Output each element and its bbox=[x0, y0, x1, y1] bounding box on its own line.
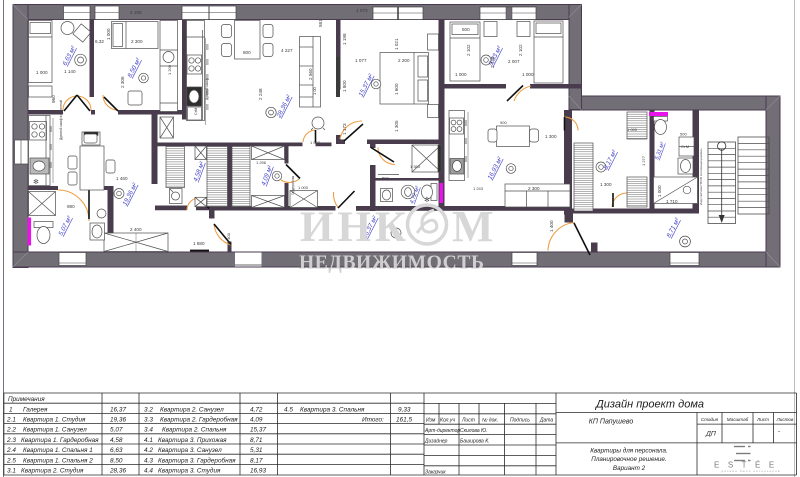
svg-text:3.1: 3.1 bbox=[7, 468, 16, 475]
svg-text:4,72: 4,72 bbox=[250, 406, 263, 413]
svg-text:16,37: 16,37 bbox=[110, 406, 126, 413]
svg-text:960: 960 bbox=[51, 95, 56, 103]
svg-text:Духовой шкаф встроенный: Духовой шкаф встроенный bbox=[59, 100, 63, 140]
svg-text:28,36: 28,36 bbox=[109, 468, 126, 475]
svg-text:161,5: 161,5 bbox=[396, 417, 412, 424]
svg-text:✻: ✻ bbox=[33, 178, 39, 186]
svg-text:Вариант 2: Вариант 2 bbox=[613, 465, 646, 472]
svg-text:1 300: 1 300 bbox=[600, 182, 612, 187]
svg-text:2 102: 2 102 bbox=[518, 44, 523, 56]
svg-text:1 365: 1 365 bbox=[410, 164, 421, 169]
svg-text:15,37: 15,37 bbox=[250, 427, 266, 434]
svg-text:Квартира 3. Санузел: Квартира 3. Санузел bbox=[158, 447, 222, 454]
svg-text:Квартира 1. Санузел: Квартира 1. Санузел bbox=[23, 427, 87, 434]
svg-text:✻: ✻ bbox=[424, 196, 430, 204]
svg-text:600: 600 bbox=[206, 104, 210, 110]
svg-text:Лист: Лист bbox=[756, 417, 769, 422]
svg-text:600: 600 bbox=[464, 156, 468, 162]
svg-text:2 100: 2 100 bbox=[130, 10, 142, 15]
svg-text:2.2: 2.2 bbox=[6, 427, 16, 434]
svg-text:1 000: 1 000 bbox=[106, 28, 111, 40]
svg-text:Квартира 2. Санузел: Квартира 2. Санузел bbox=[160, 406, 224, 413]
svg-text:3.4: 3.4 bbox=[144, 427, 153, 434]
svg-text:1 460: 1 460 bbox=[116, 176, 128, 181]
svg-text:600: 600 bbox=[206, 59, 210, 65]
svg-text:1 000: 1 000 bbox=[298, 185, 309, 190]
svg-text:1 173: 1 173 bbox=[342, 123, 347, 135]
svg-text:Итого:: Итого: bbox=[362, 417, 384, 424]
svg-text:Лист: Лист bbox=[461, 418, 475, 424]
svg-text:8,71: 8,71 bbox=[250, 437, 263, 444]
svg-text:1 880: 1 880 bbox=[193, 241, 205, 246]
svg-text:1 300: 1 300 bbox=[545, 134, 557, 139]
svg-text:600: 600 bbox=[49, 126, 53, 132]
svg-text:2.4: 2.4 bbox=[6, 447, 16, 454]
svg-text:4,58: 4,58 bbox=[110, 437, 123, 444]
svg-text:1 000: 1 000 bbox=[627, 127, 638, 132]
svg-text:1 000: 1 000 bbox=[36, 70, 48, 75]
svg-text:1 600: 1 600 bbox=[394, 83, 399, 95]
svg-text:1 243: 1 243 bbox=[414, 139, 426, 144]
svg-text:1 243: 1 243 bbox=[473, 186, 484, 191]
svg-text:2 200: 2 200 bbox=[398, 58, 410, 63]
svg-text:600: 600 bbox=[182, 33, 187, 40]
svg-text:Квартиры для персонала.: Квартиры для персонала. bbox=[590, 447, 667, 455]
svg-text:4 227: 4 227 bbox=[281, 48, 293, 53]
svg-text:Квартира 3. Прихожая: Квартира 3. Прихожая bbox=[158, 437, 227, 444]
svg-text:Подпись: Подпись bbox=[510, 418, 530, 424]
svg-text:2.3: 2.3 bbox=[6, 437, 16, 444]
svg-text:3.3: 3.3 bbox=[144, 417, 153, 424]
svg-text:1 400: 1 400 bbox=[549, 220, 554, 232]
svg-text:КП Папушево: КП Папушево bbox=[589, 419, 634, 426]
svg-text:581: 581 bbox=[318, 19, 323, 27]
svg-text:Квартира 1. Студия: Квартира 1. Студия bbox=[23, 416, 86, 424]
svg-text:500: 500 bbox=[680, 132, 687, 137]
svg-text:19,36: 19,36 bbox=[110, 417, 126, 424]
svg-text:1 200: 1 200 bbox=[167, 64, 172, 75]
svg-text:Квартира 1. Спальня 2: Квартира 1. Спальня 2 bbox=[23, 457, 93, 464]
svg-text:5,07: 5,07 bbox=[110, 427, 123, 434]
svg-text:1 277: 1 277 bbox=[641, 155, 646, 166]
svg-text:6,63: 6,63 bbox=[110, 447, 123, 454]
svg-text:Примечания: Примечания bbox=[8, 396, 45, 403]
svg-text:4,09: 4,09 bbox=[250, 417, 263, 424]
svg-text:2 560: 2 560 bbox=[308, 68, 313, 80]
svg-text:600: 600 bbox=[49, 162, 53, 168]
svg-text:М: М bbox=[452, 202, 494, 251]
svg-text:Стадия: Стадия bbox=[701, 417, 719, 422]
svg-text:2 007: 2 007 bbox=[508, 59, 520, 64]
svg-text:1 000: 1 000 bbox=[522, 72, 534, 77]
svg-text:Масштаб: Масштаб bbox=[727, 417, 749, 422]
svg-text:4.5: 4.5 bbox=[284, 406, 293, 413]
svg-text:1 073: 1 073 bbox=[356, 8, 368, 13]
svg-text:Скилова Ю.: Скилова Ю. bbox=[460, 428, 488, 434]
svg-text:Квартира 2. Гардеробная: Квартира 2. Гардеробная bbox=[160, 416, 238, 424]
svg-text:1 400: 1 400 bbox=[226, 232, 231, 243]
svg-text:Дизайн проект дома: Дизайн проект дома bbox=[594, 399, 704, 411]
svg-text:600: 600 bbox=[49, 144, 53, 150]
svg-text:Инд счетчики ГВ/ХВ полотенцесу: Инд счетчики ГВ/ХВ полотенцесушитель bbox=[699, 148, 703, 205]
svg-text:1 077: 1 077 bbox=[355, 58, 367, 63]
svg-text:2 300: 2 300 bbox=[528, 186, 540, 191]
svg-text:5,31: 5,31 bbox=[250, 447, 263, 454]
svg-text:Баширова К.: Баширова К. bbox=[460, 438, 490, 444]
svg-text:№ док.: № док. bbox=[482, 418, 498, 424]
svg-text:СтМ: СтМ bbox=[681, 144, 689, 149]
svg-text:4.2: 4.2 bbox=[144, 447, 153, 454]
svg-text:500: 500 bbox=[382, 176, 389, 181]
svg-text:600: 600 bbox=[464, 138, 468, 144]
svg-text:Квартира 3. Студия: Квартира 3. Студия bbox=[158, 467, 221, 475]
svg-text:1 198: 1 198 bbox=[342, 33, 347, 45]
svg-text:1 021: 1 021 bbox=[394, 38, 399, 50]
svg-text:1 305: 1 305 bbox=[394, 120, 399, 132]
svg-text:1 00: 1 00 bbox=[312, 86, 317, 95]
svg-text:2 102: 2 102 bbox=[466, 44, 471, 56]
svg-text:1 000: 1 000 bbox=[455, 72, 467, 77]
svg-text:2 745: 2 745 bbox=[490, 56, 495, 68]
svg-text:Изм: Изм bbox=[426, 418, 436, 424]
svg-text:2 248: 2 248 bbox=[258, 88, 263, 100]
svg-text:6,32: 6,32 bbox=[95, 39, 104, 44]
svg-text:Планировочное решение.: Планировочное решение. bbox=[591, 456, 666, 463]
svg-text:Квартира 3. Спальня: Квартира 3. Спальня bbox=[300, 406, 365, 413]
svg-text:1 583: 1 583 bbox=[310, 140, 321, 145]
svg-text:1 800: 1 800 bbox=[342, 80, 347, 92]
svg-text:2.1: 2.1 bbox=[6, 417, 16, 424]
svg-text:2.5: 2.5 bbox=[6, 457, 16, 464]
svg-text:3.2: 3.2 bbox=[144, 406, 153, 413]
svg-text:Галерея: Галерея bbox=[23, 406, 48, 413]
svg-text:Квартира 1. Гардеробная: Квартира 1. Гардеробная bbox=[21, 436, 99, 444]
svg-text:9,33: 9,33 bbox=[398, 406, 411, 413]
svg-text:800: 800 bbox=[243, 50, 251, 55]
svg-text:16,93: 16,93 bbox=[250, 468, 266, 475]
svg-text:4.4: 4.4 bbox=[144, 468, 153, 475]
svg-text:дизайн бюро интерьеров: дизайн бюро интерьеров bbox=[721, 469, 780, 473]
svg-text:600: 600 bbox=[464, 120, 468, 126]
svg-text:ИНК: ИНК bbox=[300, 204, 410, 251]
svg-text:2 306: 2 306 bbox=[120, 76, 125, 88]
svg-text:8,17: 8,17 bbox=[250, 457, 263, 464]
svg-text:НЕДВИЖИМОСТЬ: НЕДВИЖИМОСТЬ bbox=[299, 253, 484, 274]
svg-text:Арт-директор: Арт-директор bbox=[424, 428, 460, 434]
svg-text:2 400: 2 400 bbox=[130, 227, 142, 232]
svg-text:1 710: 1 710 bbox=[666, 199, 678, 204]
svg-text:Заказчик: Заказчик bbox=[425, 470, 446, 476]
svg-text:980: 980 bbox=[67, 204, 75, 209]
svg-text:ДП: ДП bbox=[705, 431, 716, 438]
svg-text:8,50: 8,50 bbox=[110, 457, 123, 464]
svg-text:Дата: Дата bbox=[539, 418, 553, 424]
svg-text:СтМ: СтМ bbox=[194, 108, 198, 115]
svg-text:1 296: 1 296 bbox=[256, 160, 267, 165]
svg-text:4.1: 4.1 bbox=[144, 437, 153, 444]
svg-text:500: 500 bbox=[462, 27, 470, 32]
svg-text:Дизайнер: Дизайнер bbox=[424, 437, 448, 444]
svg-text:Квартира 1. Спальня 1: Квартира 1. Спальня 1 bbox=[23, 447, 93, 454]
svg-text:1 000: 1 000 bbox=[657, 185, 662, 197]
svg-text:Квартира 3. Гардеробная: Квартира 3. Гардеробная bbox=[158, 456, 236, 464]
svg-text:Листов: Листов bbox=[776, 417, 794, 422]
svg-text:Квартира 2. Студия: Квартира 2. Студия bbox=[21, 467, 84, 475]
svg-text:Духовой шкаф: Духовой шкаф bbox=[205, 78, 209, 100]
svg-text:900: 900 bbox=[500, 120, 507, 125]
svg-text:4.3: 4.3 bbox=[144, 457, 153, 464]
svg-text:Кол.уч: Кол.уч bbox=[440, 418, 455, 424]
svg-text:1: 1 bbox=[9, 406, 13, 413]
svg-text:2 300: 2 300 bbox=[131, 39, 143, 44]
svg-text:Квартира 2. Спальня: Квартира 2. Спальня bbox=[162, 427, 227, 434]
svg-text:Гардеробная: Гардеробная bbox=[291, 175, 295, 195]
svg-text:1 140: 1 140 bbox=[64, 69, 76, 74]
svg-text:600: 600 bbox=[206, 44, 210, 50]
